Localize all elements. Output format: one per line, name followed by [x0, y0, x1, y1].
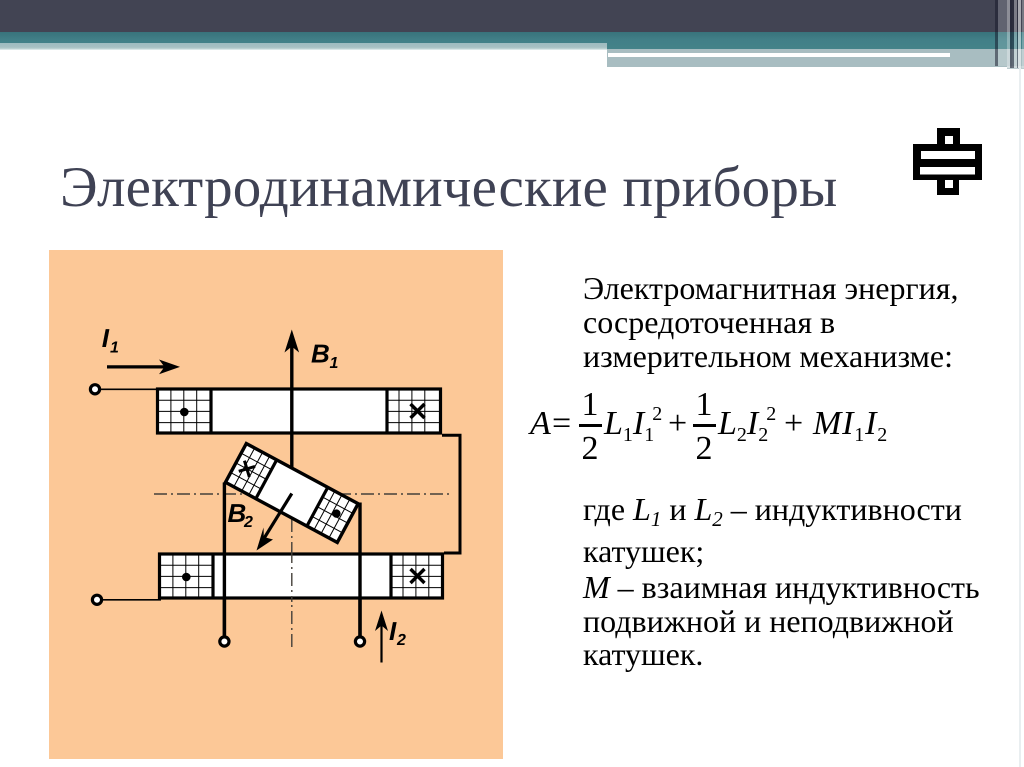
svg-text:B: B	[311, 338, 330, 368]
svg-text:2: 2	[243, 514, 253, 531]
svg-text:2: 2	[396, 632, 406, 649]
svg-text:1: 1	[330, 355, 339, 372]
svg-text:I: I	[102, 323, 110, 353]
svg-text:I: I	[389, 616, 397, 646]
svg-text:1: 1	[110, 340, 119, 357]
